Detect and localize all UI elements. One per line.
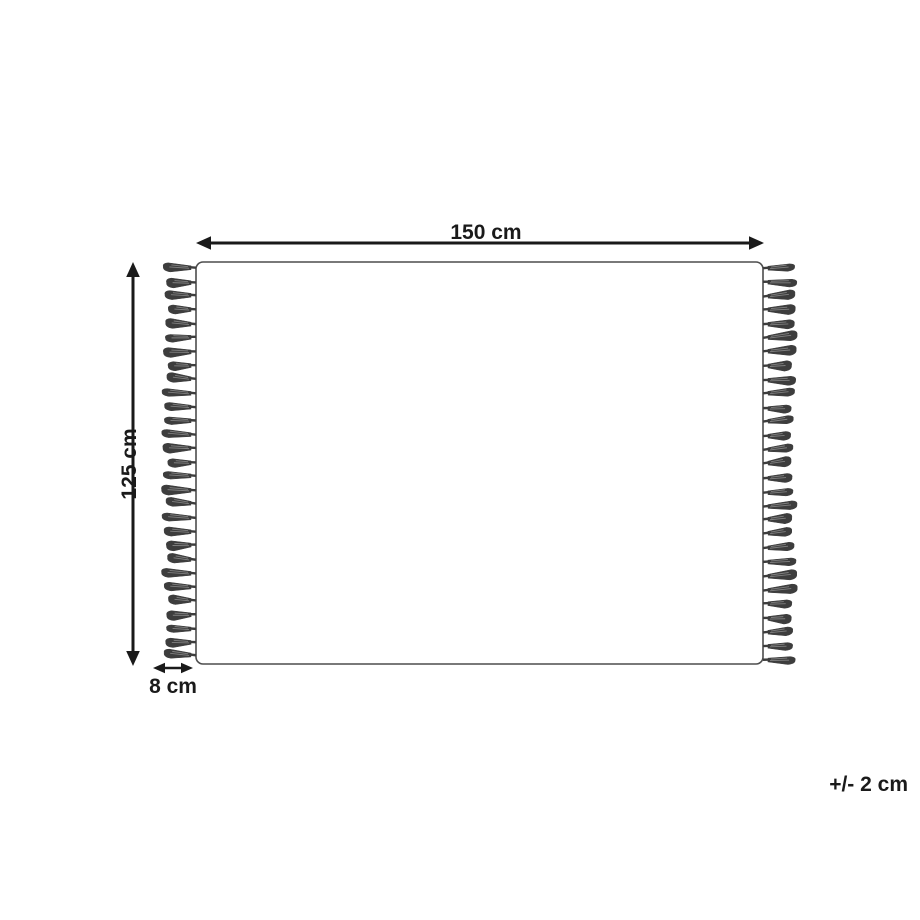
- tassel: [763, 569, 797, 581]
- tassel: [763, 627, 793, 637]
- tassel: [763, 456, 792, 468]
- tassel: [763, 278, 797, 288]
- rug-fringe-right: [763, 264, 798, 665]
- tassel: [763, 444, 794, 454]
- fringe-dimension: 8 cm: [149, 663, 197, 698]
- tassel: [164, 417, 196, 425]
- tassel: [763, 404, 792, 414]
- fringe-arrowhead-right: [181, 663, 193, 674]
- diagram-svg: 150 cm 125 cm 8 cm +/- 2 cm: [0, 0, 920, 920]
- tassel: [763, 304, 795, 315]
- fringe-dimension-label: 8 cm: [149, 675, 197, 698]
- tassel: [168, 458, 197, 468]
- tassel: [763, 488, 793, 496]
- width-dimension-label: 150 cm: [450, 221, 521, 244]
- height-arrowhead-bottom: [126, 651, 140, 666]
- rug-fringe-left: [161, 263, 196, 660]
- rug-outline: [196, 262, 763, 664]
- tassel: [166, 277, 196, 288]
- width-arrowhead-left: [196, 236, 211, 250]
- tassel: [763, 656, 796, 665]
- tassel: [763, 388, 795, 398]
- tassel: [763, 642, 793, 651]
- tassel: [164, 527, 196, 536]
- tassel: [162, 389, 196, 397]
- tassel: [165, 318, 196, 329]
- tassel: [161, 568, 196, 577]
- tassel: [763, 290, 796, 302]
- tassel: [166, 625, 196, 633]
- height-dimension: 125 cm: [118, 262, 141, 666]
- tassel: [763, 474, 792, 483]
- tassel: [163, 443, 196, 454]
- tassel: [763, 360, 792, 371]
- tassel: [763, 599, 792, 609]
- tassel: [763, 319, 795, 329]
- tassel: [763, 584, 798, 595]
- tassel: [167, 553, 196, 564]
- width-arrowhead-right: [749, 236, 764, 250]
- tassel: [168, 595, 196, 605]
- tassel: [763, 345, 797, 356]
- tassel: [168, 360, 196, 371]
- tassel: [763, 415, 794, 425]
- tassel: [763, 613, 792, 625]
- tassel: [163, 471, 196, 479]
- tassel: [163, 346, 196, 357]
- fringe-arrowhead-left: [153, 663, 165, 674]
- tassel: [165, 637, 196, 648]
- tassel: [763, 264, 795, 272]
- tassel: [763, 431, 791, 440]
- width-dimension: 150 cm: [196, 221, 764, 250]
- tassel: [166, 497, 197, 508]
- tassel: [763, 330, 798, 342]
- tassel: [162, 513, 196, 522]
- tassel: [763, 527, 792, 538]
- tassel: [168, 305, 196, 315]
- tassel: [166, 609, 196, 621]
- tassel: [161, 485, 196, 495]
- tassel: [763, 542, 795, 552]
- tassel: [164, 402, 196, 411]
- tolerance-label: +/- 2 cm: [829, 773, 908, 796]
- tassel: [763, 513, 792, 524]
- tassel: [763, 558, 796, 566]
- tassel: [162, 429, 197, 438]
- tassel: [166, 539, 196, 551]
- height-arrowhead-top: [126, 262, 140, 277]
- tassel: [163, 263, 196, 272]
- tassel: [165, 333, 196, 343]
- rug-dimension-diagram: 150 cm 125 cm 8 cm +/- 2 cm: [0, 0, 920, 920]
- tassel: [165, 291, 196, 300]
- tassel: [763, 501, 797, 511]
- tassel: [164, 582, 196, 591]
- tassel: [164, 649, 196, 660]
- tassel: [763, 375, 796, 385]
- tassel: [167, 372, 197, 383]
- height-dimension-label: 125 cm: [118, 428, 141, 499]
